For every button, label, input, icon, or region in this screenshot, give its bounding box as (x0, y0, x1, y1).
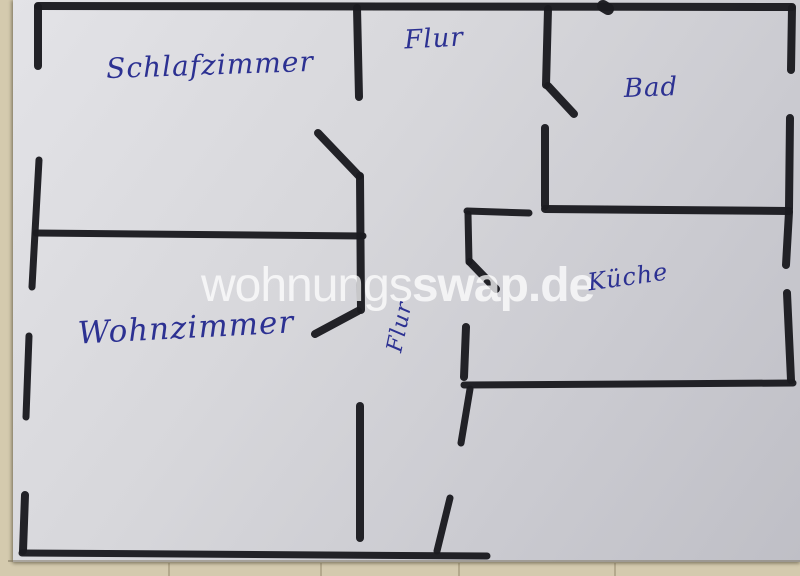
wall-segment (789, 118, 790, 209)
wall-segment (545, 209, 789, 211)
wall-segment (32, 160, 39, 287)
wall-segment (315, 311, 358, 334)
floorplan-photo: wohnungsswap.de SchlafzimmerFlurBadKüche… (0, 0, 800, 576)
wall-segment (357, 8, 359, 97)
watermark: wohnungsswap.de (201, 261, 594, 311)
wall-segment (22, 553, 487, 556)
wall-segment (791, 8, 792, 70)
wall-segment (603, 6, 608, 9)
wall-segment (23, 495, 25, 551)
wall-segment (786, 212, 789, 265)
wall-segment (546, 9, 548, 85)
wall-segment (468, 214, 469, 262)
watermark-light-text: wohnungs (201, 259, 412, 312)
wall-segment (464, 383, 793, 385)
wall-segment (437, 498, 450, 551)
wall-segment (38, 6, 792, 7)
wall-segment (464, 327, 466, 377)
wall-segment (26, 336, 29, 417)
wall-segment (548, 86, 574, 114)
wall-segment (36, 233, 363, 236)
watermark-bold-text: swap.de (412, 259, 594, 312)
wall-segment (787, 293, 791, 380)
wall-segment (461, 389, 470, 443)
wall-segment (467, 211, 529, 213)
wall-segment (318, 133, 359, 176)
